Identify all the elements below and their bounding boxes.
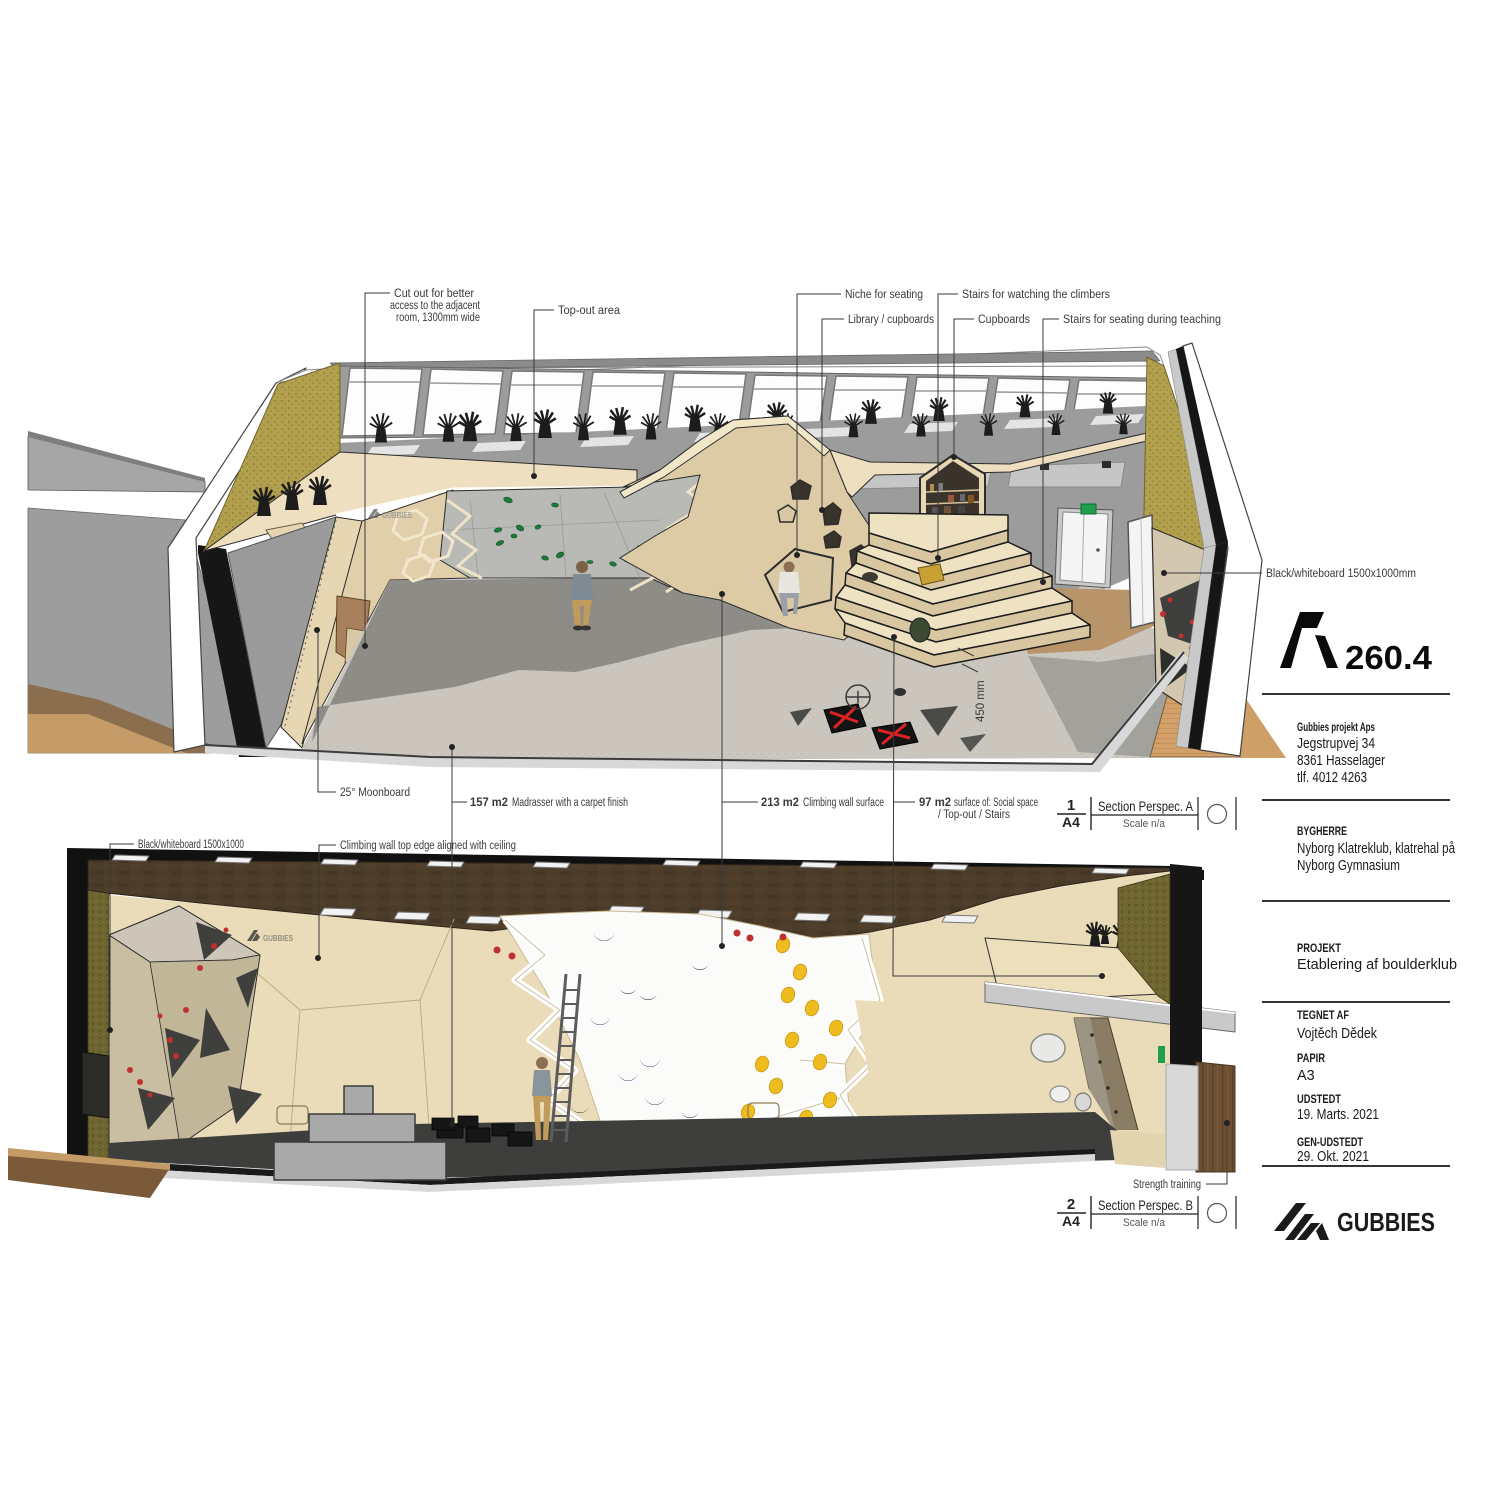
svg-text:access to the adjacent: access to the adjacent [390, 300, 481, 312]
svg-text:Nyborg Klatreklub, klatrehal p: Nyborg Klatreklub, klatrehal på [1297, 841, 1456, 857]
svg-text:Madrasser with a carpet finish: Madrasser with a carpet finish [512, 797, 628, 809]
svg-text:29. Okt. 2021: 29. Okt. 2021 [1297, 1149, 1369, 1165]
svg-text:A3: A3 [1297, 1068, 1315, 1084]
svg-text:Gubbies projekt Aps: Gubbies projekt Aps [1297, 722, 1375, 734]
svg-text:213 m2: 213 m2 [761, 797, 799, 809]
svg-text:PROJEKT: PROJEKT [1297, 943, 1341, 955]
svg-text:Strength training: Strength training [1133, 1179, 1201, 1191]
svg-text:UDSTEDT: UDSTEDT [1297, 1094, 1341, 1106]
svg-text:25° Moonboard: 25° Moonboard [340, 787, 410, 799]
svg-text:Climbing wall surface: Climbing wall surface [803, 797, 884, 809]
svg-text:450 mm: 450 mm [975, 680, 987, 722]
svg-text:Section Perspec. B: Section Perspec. B [1098, 1197, 1193, 1213]
svg-text:GUBBIES: GUBBIES [1337, 1207, 1435, 1237]
svg-text:Black/whiteboard 1500x1000mm: Black/whiteboard 1500x1000mm [1266, 568, 1416, 580]
svg-text:/ Top-out / Stairs: / Top-out / Stairs [938, 809, 1010, 821]
svg-text:Niche for seating: Niche for seating [845, 289, 923, 301]
svg-text:Stairs for watching the climbe: Stairs for watching the climbers [962, 289, 1110, 301]
svg-text:Etablering af boulderklub: Etablering af boulderklub [1297, 957, 1457, 973]
svg-text:8361 Hasselager: 8361 Hasselager [1297, 753, 1385, 769]
svg-text:GUBBIES: GUBBIES [382, 511, 413, 520]
svg-text:PAPIR: PAPIR [1297, 1053, 1326, 1065]
svg-text:surface of: Social space: surface of: Social space [954, 797, 1038, 809]
svg-text:Climbing wall top edge aligned: Climbing wall top edge aligned with ceil… [340, 840, 516, 852]
svg-text:Black/whiteboard 1500x1000: Black/whiteboard 1500x1000 [138, 839, 244, 851]
svg-text:Section Perspec. A: Section Perspec. A [1098, 798, 1194, 814]
svg-text:Top-out area: Top-out area [558, 305, 621, 317]
svg-text:Scale n/a: Scale n/a [1123, 1217, 1166, 1229]
svg-text:2: 2 [1067, 1196, 1075, 1213]
svg-text:Stairs for seating during teac: Stairs for seating during teaching [1063, 314, 1221, 326]
svg-text:260.4: 260.4 [1345, 639, 1433, 676]
svg-text:Vojtěch Dědek: Vojtěch Dědek [1297, 1026, 1378, 1042]
svg-text:A4: A4 [1062, 814, 1080, 830]
svg-text:1: 1 [1067, 797, 1075, 814]
svg-text:GEN-UDSTEDT: GEN-UDSTEDT [1297, 1137, 1363, 1149]
svg-text:Jegstrupvej 34: Jegstrupvej 34 [1297, 736, 1375, 752]
svg-text:A4: A4 [1062, 1213, 1080, 1229]
svg-text:GUBBIES: GUBBIES [263, 933, 293, 943]
svg-text:Scale n/a: Scale n/a [1123, 818, 1166, 830]
svg-text:157 m2: 157 m2 [470, 797, 508, 809]
svg-text:19. Marts. 2021: 19. Marts. 2021 [1297, 1107, 1379, 1123]
svg-text:TEGNET AF: TEGNET AF [1297, 1010, 1349, 1022]
svg-text:Nyborg Gymnasium: Nyborg Gymnasium [1297, 858, 1400, 874]
svg-text:Library / cupboards: Library / cupboards [848, 314, 934, 326]
svg-text:Cupboards: Cupboards [978, 314, 1030, 326]
svg-text:room, 1300mm wide: room, 1300mm wide [396, 312, 480, 324]
svg-text:Cut out for better: Cut out for better [394, 288, 474, 300]
svg-text:tlf. 4012 4263: tlf. 4012 4263 [1297, 770, 1367, 786]
svg-text:BYGHERRE: BYGHERRE [1297, 826, 1347, 838]
svg-text:97 m2: 97 m2 [919, 797, 951, 809]
